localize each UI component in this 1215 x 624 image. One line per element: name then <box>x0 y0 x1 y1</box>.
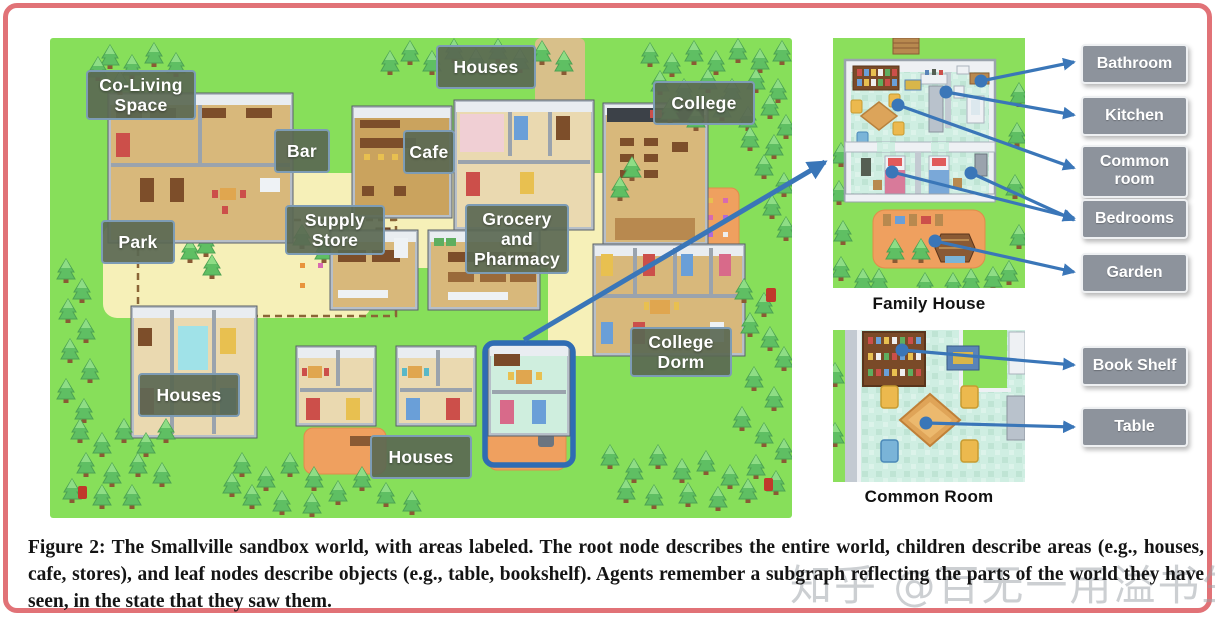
map-label-bar: Bar <box>274 129 330 173</box>
label-book-shelf: Book Shelf <box>1081 346 1188 386</box>
family-house-caption: Family House <box>833 294 1025 314</box>
map-label-college: College <box>653 81 755 125</box>
figure-caption: Figure 2: The Smallville sandbox world, … <box>28 534 1204 615</box>
map-label-college-dorm: College Dorm <box>630 327 732 377</box>
common-room-caption: Common Room <box>833 487 1025 507</box>
smallville-map: Co-Living Space Houses Bar Cafe College … <box>50 38 792 518</box>
map-label-houses-top: Houses <box>436 45 536 89</box>
label-kitchen: Kitchen <box>1081 96 1188 136</box>
map-label-park: Park <box>101 220 175 264</box>
family-house-image <box>833 38 1025 288</box>
map-label-houses-bottom: Houses <box>370 435 472 479</box>
label-table: Table <box>1081 407 1188 447</box>
label-common-room: Common room <box>1081 145 1188 198</box>
map-label-houses-left: Houses <box>138 373 240 417</box>
common-room-image <box>833 330 1025 482</box>
label-bedrooms: Bedrooms <box>1081 199 1188 239</box>
label-bathroom: Bathroom <box>1081 44 1188 84</box>
map-label-cafe: Cafe <box>403 130 455 174</box>
map-label-grocery-pharmacy: Grocery and Pharmacy <box>465 204 569 274</box>
map-label-co-living-space: Co-Living Space <box>86 70 196 120</box>
figure-frame: Co-Living Space Houses Bar Cafe College … <box>3 3 1212 613</box>
map-label-supply-store: Supply Store <box>285 205 385 255</box>
label-garden: Garden <box>1081 253 1188 293</box>
